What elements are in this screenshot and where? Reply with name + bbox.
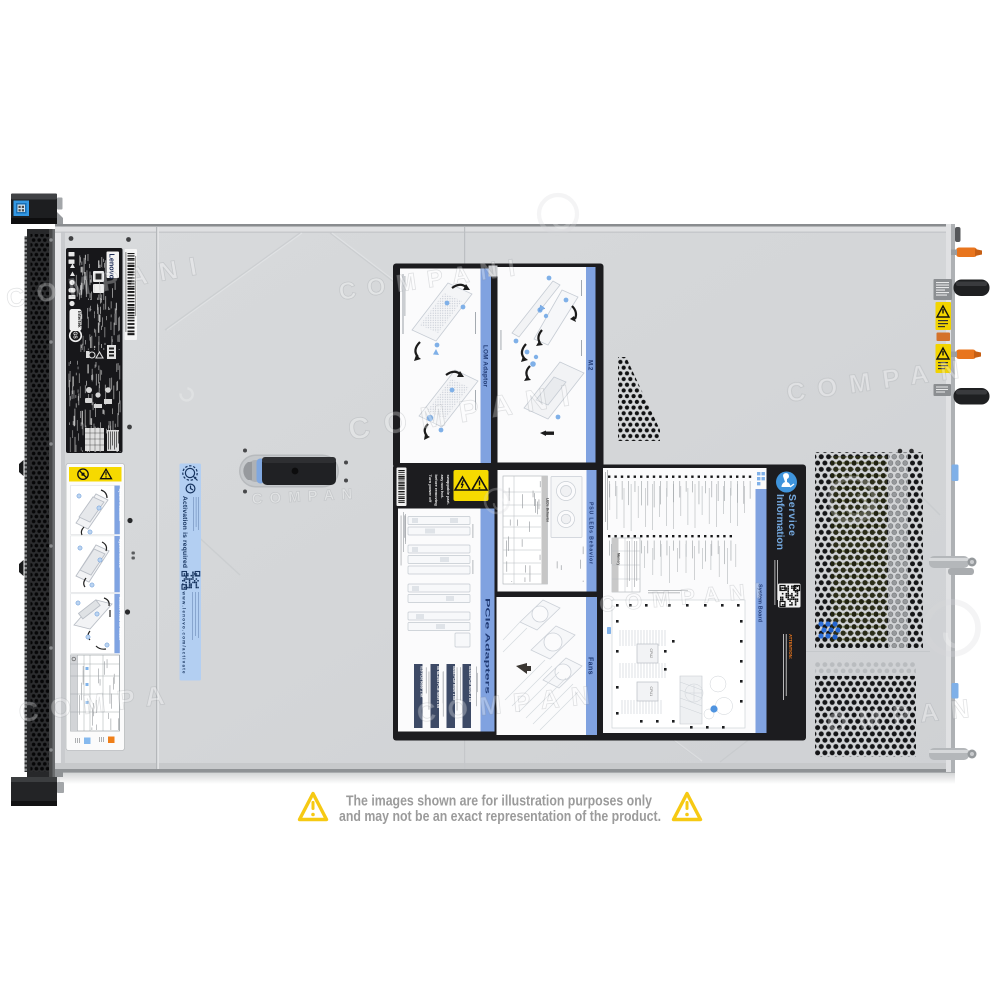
svg-text:System Installation: System Installation xyxy=(118,489,122,522)
svg-text:CPU1: CPU1 xyxy=(649,687,653,697)
svg-text:Fans: Fans xyxy=(587,657,594,675)
svg-text:before removing: before removing xyxy=(434,475,439,507)
svg-text:System Removal: System Removal xyxy=(118,539,122,568)
svg-text:Activation is required: Activation is required xyxy=(181,496,188,568)
svg-text:Information: Information xyxy=(774,494,786,550)
svg-text:PSU LEDs Behavior: PSU LEDs Behavior xyxy=(588,502,594,564)
svg-text:x16 PCIe Riser 2 kit: x16 PCIe Riser 2 kit xyxy=(419,666,423,698)
svg-text:Turn power off: Turn power off xyxy=(428,475,433,503)
svg-text:M.2: M.2 xyxy=(587,360,594,371)
svg-text:Remove Front I/O Module: Remove Front I/O Module xyxy=(118,597,122,641)
svg-text:LEDs Behavior: LEDs Behavior xyxy=(546,498,550,523)
svg-text:and may not be an exact repres: and may not be an exact representation o… xyxy=(339,809,661,825)
svg-text:GS: GS xyxy=(71,332,77,340)
svg-text:any non hot-: any non hot- xyxy=(440,475,445,500)
svg-text:PCIe Adapters: PCIe Adapters xyxy=(484,598,491,694)
svg-text:CPU2: CPU2 xyxy=(649,649,653,659)
svg-text:Memory: Memory xyxy=(617,553,621,565)
svg-text:The images shown are for illus: The images shown are for illustration pu… xyxy=(346,794,653,810)
svg-text:Intertek: Intertek xyxy=(77,311,82,328)
svg-text:www.lenovo.com/activate: www.lenovo.com/activate xyxy=(182,591,187,675)
svg-text:ATTENTION:: ATTENTION: xyxy=(788,634,793,659)
svg-text:LOM Adaptor: LOM Adaptor xyxy=(482,345,489,388)
svg-text:swappable part.: swappable part. xyxy=(446,475,451,505)
svg-text:Service: Service xyxy=(786,494,798,536)
